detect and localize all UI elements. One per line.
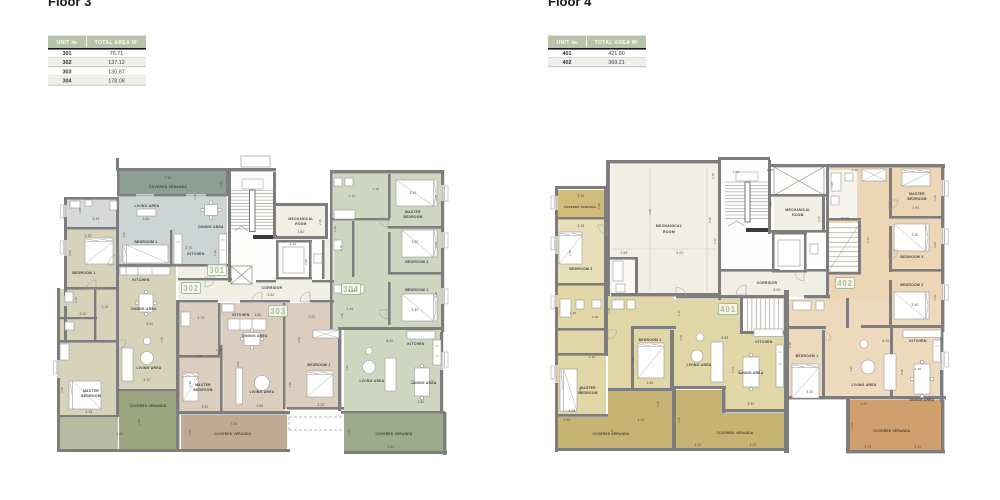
svg-text:1.65: 1.65 — [620, 251, 627, 255]
svg-text:3.30: 3.30 — [201, 405, 208, 409]
svg-text:301: 301 — [63, 51, 72, 57]
svg-text:1.60: 1.60 — [78, 208, 82, 214]
svg-text:304: 304 — [63, 79, 72, 85]
svg-text:5.15: 5.15 — [900, 369, 904, 375]
svg-text:4.10: 4.10 — [637, 418, 644, 422]
svg-text:6.80: 6.80 — [387, 445, 394, 449]
svg-text:6.65: 6.65 — [648, 209, 652, 215]
svg-text:4.50: 4.50 — [769, 201, 773, 207]
svg-text:4.45: 4.45 — [122, 232, 126, 238]
svg-text:130.87: 130.87 — [108, 69, 125, 75]
svg-text:9.10: 9.10 — [708, 217, 712, 223]
svg-text:2.70: 2.70 — [197, 316, 204, 320]
svg-text:3.25: 3.25 — [933, 295, 937, 301]
svg-text:MECHANICAL: MECHANICAL — [656, 224, 683, 228]
svg-text:2.60: 2.60 — [116, 432, 123, 436]
svg-text:DINING AREA: DINING AREA — [131, 307, 157, 311]
svg-text:302: 302 — [183, 284, 199, 293]
svg-text:1.30: 1.30 — [193, 194, 197, 200]
svg-text:1.15: 1.15 — [677, 310, 681, 316]
svg-text:303: 303 — [270, 307, 286, 316]
svg-text:LIVING AREA: LIVING AREA — [851, 383, 876, 387]
svg-text:1.15: 1.15 — [216, 348, 223, 352]
svg-text:DINING AREA: DINING AREA — [739, 371, 764, 375]
svg-text:BEDROOM 1: BEDROOM 1 — [796, 354, 819, 358]
svg-text:303: 303 — [63, 69, 72, 75]
svg-text:401: 401 — [563, 51, 572, 57]
svg-text:6.20: 6.20 — [882, 339, 889, 343]
svg-text:CORRIDOR: CORRIDOR — [757, 281, 778, 285]
svg-text:LIVING AREA: LIVING AREA — [359, 379, 384, 383]
svg-text:1.90: 1.90 — [304, 259, 308, 265]
svg-text:2.16: 2.16 — [349, 289, 356, 293]
svg-text:Floor 4: Floor 4 — [548, 0, 592, 9]
svg-text:KITCHEN: KITCHEN — [187, 252, 204, 256]
svg-text:MASTER: MASTER — [580, 386, 596, 390]
svg-text:2.60: 2.60 — [297, 337, 301, 343]
svg-text:3.25: 3.25 — [933, 195, 937, 201]
svg-text:402: 402 — [563, 60, 572, 66]
svg-text:401: 401 — [720, 305, 736, 314]
svg-text:369.21: 369.21 — [608, 60, 625, 66]
svg-text:3.75: 3.75 — [864, 445, 871, 449]
svg-text:3.25: 3.25 — [434, 292, 438, 298]
svg-text:BEDROOM: BEDROOM — [907, 197, 926, 201]
svg-text:2.80: 2.80 — [417, 400, 424, 404]
svg-text:7.45: 7.45 — [230, 422, 237, 426]
svg-text:MECHANICAL: MECHANICAL — [288, 217, 313, 221]
svg-text:3.50: 3.50 — [411, 308, 418, 312]
svg-text:1.80: 1.80 — [340, 313, 344, 319]
svg-text:3.65: 3.65 — [142, 217, 149, 221]
svg-text:4.65: 4.65 — [347, 429, 351, 435]
svg-text:2.30: 2.30 — [713, 238, 717, 244]
svg-text:5.10: 5.10 — [213, 250, 217, 256]
svg-text:5.15: 5.15 — [731, 367, 735, 373]
svg-text:BEDROOM 2: BEDROOM 2 — [900, 283, 923, 287]
svg-text:UNIT №: UNIT № — [556, 40, 577, 46]
svg-text:2.00: 2.00 — [733, 170, 740, 174]
svg-text:BEDROOM: BEDROOM — [193, 388, 212, 392]
svg-text:3.45: 3.45 — [60, 387, 64, 393]
svg-text:1.15: 1.15 — [196, 354, 203, 358]
svg-text:3.60: 3.60 — [297, 230, 304, 234]
svg-text:COVERED VERANDA: COVERED VERANDA — [874, 429, 911, 433]
svg-text:11.00: 11.00 — [841, 216, 849, 220]
svg-text:5.25: 5.25 — [577, 194, 584, 198]
svg-text:KITCHEN: KITCHEN — [132, 278, 149, 282]
svg-text:DINING AREA: DINING AREA — [242, 334, 268, 338]
svg-text:1.15: 1.15 — [607, 308, 611, 314]
svg-text:3.30: 3.30 — [806, 390, 813, 394]
svg-text:3.90: 3.90 — [912, 206, 919, 210]
svg-text:2.00: 2.00 — [570, 311, 577, 315]
svg-text:7.55: 7.55 — [164, 176, 171, 180]
svg-text:3.22: 3.22 — [694, 443, 701, 447]
svg-text:1.05: 1.05 — [373, 187, 380, 191]
svg-text:COVERED VERANDA: COVERED VERANDA — [215, 432, 252, 436]
svg-text:421.80: 421.80 — [608, 51, 625, 57]
svg-text:ROOM: ROOM — [295, 222, 306, 226]
svg-text:DINING AREA: DINING AREA — [198, 225, 224, 229]
svg-text:BEDROOM 2: BEDROOM 2 — [405, 260, 428, 264]
svg-text:2.45: 2.45 — [817, 216, 821, 222]
svg-text:2.00: 2.00 — [915, 367, 922, 371]
svg-text:3.30: 3.30 — [631, 357, 635, 363]
svg-text:DINING AREA: DINING AREA — [412, 381, 437, 385]
svg-text:COVERED VERANDA: COVERED VERANDA — [130, 404, 167, 408]
svg-text:178.08: 178.08 — [108, 79, 125, 85]
svg-text:DINING AREA: DINING AREA — [910, 398, 935, 402]
svg-text:2.50: 2.50 — [677, 417, 681, 423]
svg-text:CORRIDOR: CORRIDOR — [262, 286, 283, 290]
svg-text:3.25: 3.25 — [568, 409, 575, 413]
svg-text:2.00: 2.00 — [79, 312, 86, 316]
svg-text:2.70: 2.70 — [74, 297, 78, 303]
svg-text:3.90: 3.90 — [409, 191, 416, 195]
svg-text:3.10: 3.10 — [914, 445, 921, 449]
svg-text:1.15: 1.15 — [866, 237, 870, 243]
svg-text:2.40: 2.40 — [137, 419, 141, 425]
svg-text:3.30: 3.30 — [747, 402, 754, 406]
svg-text:3.25: 3.25 — [434, 195, 438, 201]
svg-text:BEDROOM 1: BEDROOM 1 — [307, 363, 330, 367]
svg-text:2.20: 2.20 — [656, 401, 660, 407]
svg-text:4.10: 4.10 — [143, 378, 150, 382]
svg-text:LIVING AREA: LIVING AREA — [134, 204, 159, 208]
svg-text:1.45: 1.45 — [347, 307, 354, 311]
svg-text:3.90: 3.90 — [288, 382, 292, 388]
svg-text:COVERED VERANDA: COVERED VERANDA — [564, 205, 597, 209]
svg-text:1.80: 1.80 — [219, 181, 223, 187]
svg-text:MASTER: MASTER — [195, 383, 211, 387]
svg-text:3.60: 3.60 — [256, 404, 263, 408]
svg-text:2.40: 2.40 — [318, 219, 322, 225]
svg-text:KITCHEN: KITCHEN — [755, 340, 772, 344]
svg-text:KITCHEN: KITCHEN — [407, 342, 424, 346]
svg-text:2.00: 2.00 — [308, 315, 315, 319]
svg-text:4.20: 4.20 — [849, 366, 853, 372]
svg-text:6.20: 6.20 — [386, 339, 393, 343]
svg-text:3.45: 3.45 — [578, 387, 582, 393]
svg-text:3.55: 3.55 — [68, 250, 72, 256]
svg-text:BEDROOM: BEDROOM — [403, 215, 422, 219]
svg-text:BEDROOM 1: BEDROOM 1 — [134, 240, 157, 244]
svg-text:3.30: 3.30 — [317, 403, 324, 407]
svg-text:BEDROOM 1: BEDROOM 1 — [639, 338, 662, 342]
svg-text:TOTAL AREA M²: TOTAL AREA M² — [595, 40, 639, 46]
svg-text:3.40: 3.40 — [788, 342, 792, 348]
svg-text:BEDROOM: BEDROOM — [81, 394, 101, 398]
svg-text:KITCHEN: KITCHEN — [232, 313, 249, 317]
svg-text:7.75: 7.75 — [160, 337, 164, 343]
svg-text:MASTER: MASTER — [83, 389, 99, 393]
svg-text:2.50: 2.50 — [188, 429, 192, 435]
svg-text:2.70: 2.70 — [339, 245, 343, 251]
svg-text:3.25: 3.25 — [434, 242, 438, 248]
svg-text:COVERED VERANDA: COVERED VERANDA — [717, 431, 754, 435]
svg-text:4.20: 4.20 — [345, 365, 349, 371]
svg-text:1.15: 1.15 — [592, 315, 599, 319]
svg-text:1.85: 1.85 — [767, 168, 774, 172]
svg-text:302: 302 — [63, 60, 72, 66]
svg-text:Floor 3: Floor 3 — [48, 0, 91, 9]
svg-text:2.60: 2.60 — [860, 402, 867, 406]
svg-text:402: 402 — [837, 279, 853, 288]
svg-text:2.16: 2.16 — [349, 194, 356, 198]
svg-text:4.23: 4.23 — [749, 443, 756, 447]
svg-text:KITCHEN: KITCHEN — [909, 339, 926, 343]
svg-text:1.16: 1.16 — [333, 226, 337, 232]
svg-text:MASTER: MASTER — [909, 192, 925, 196]
svg-text:LIVING AREA: LIVING AREA — [249, 390, 274, 394]
svg-text:BEDROOM 1: BEDROOM 1 — [405, 288, 428, 292]
svg-text:3.25: 3.25 — [933, 242, 937, 248]
svg-text:BEDROOM 1: BEDROOM 1 — [72, 271, 95, 275]
svg-text:1.10: 1.10 — [101, 305, 108, 309]
svg-text:2.35: 2.35 — [589, 355, 596, 359]
svg-text:3.25: 3.25 — [85, 410, 92, 414]
svg-text:COVERED VERANDA: COVERED VERANDA — [376, 432, 413, 436]
svg-text:3.50: 3.50 — [911, 303, 918, 307]
svg-text:3.50: 3.50 — [411, 240, 418, 244]
svg-text:BEDROOM 2: BEDROOM 2 — [569, 267, 592, 271]
svg-text:1.85: 1.85 — [597, 203, 601, 209]
svg-text:MASTER: MASTER — [405, 210, 421, 214]
svg-text:3.50: 3.50 — [568, 250, 572, 256]
svg-text:TOTAL AREA M²: TOTAL AREA M² — [95, 40, 139, 46]
svg-text:5.60: 5.60 — [146, 322, 153, 326]
svg-text:3.45: 3.45 — [92, 217, 99, 221]
svg-text:2.10: 2.10 — [610, 429, 614, 435]
svg-text:2.00: 2.00 — [850, 422, 854, 428]
svg-text:COVERED VERANDA: COVERED VERANDA — [149, 185, 187, 189]
svg-text:ROOM: ROOM — [663, 230, 675, 234]
svg-text:301: 301 — [209, 266, 225, 275]
svg-text:3.40: 3.40 — [188, 381, 192, 387]
svg-text:2.00: 2.00 — [852, 168, 859, 172]
svg-text:1.90: 1.90 — [830, 182, 834, 188]
svg-text:3.65: 3.65 — [646, 381, 653, 385]
svg-text:6.06: 6.06 — [236, 361, 240, 367]
svg-text:4.86: 4.86 — [254, 313, 261, 317]
svg-text:3.50: 3.50 — [563, 418, 570, 422]
svg-text:2.10: 2.10 — [290, 242, 297, 246]
svg-text:6.00: 6.00 — [773, 288, 780, 292]
svg-text:2.10: 2.10 — [711, 173, 715, 179]
svg-text:137.12: 137.12 — [108, 60, 125, 66]
svg-text:ROOM: ROOM — [792, 213, 803, 217]
svg-text:5.00: 5.00 — [676, 251, 683, 255]
svg-text:8.85: 8.85 — [721, 336, 728, 340]
svg-text:3.26: 3.26 — [84, 234, 91, 238]
svg-text:3.25: 3.25 — [577, 224, 584, 228]
svg-text:75.71: 75.71 — [110, 51, 124, 57]
svg-text:BEDROOM 3: BEDROOM 3 — [900, 255, 923, 259]
svg-text:LIVING AREA: LIVING AREA — [136, 366, 161, 370]
svg-text:LIVING AREA: LIVING AREA — [686, 363, 711, 367]
svg-text:6.30: 6.30 — [679, 335, 683, 341]
svg-text:MECHANICAL: MECHANICAL — [785, 208, 810, 212]
svg-text:2.70: 2.70 — [185, 246, 192, 250]
svg-text:UNIT №: UNIT № — [56, 40, 77, 46]
svg-text:5.60: 5.60 — [267, 293, 274, 297]
svg-text:3.50: 3.50 — [911, 233, 918, 237]
